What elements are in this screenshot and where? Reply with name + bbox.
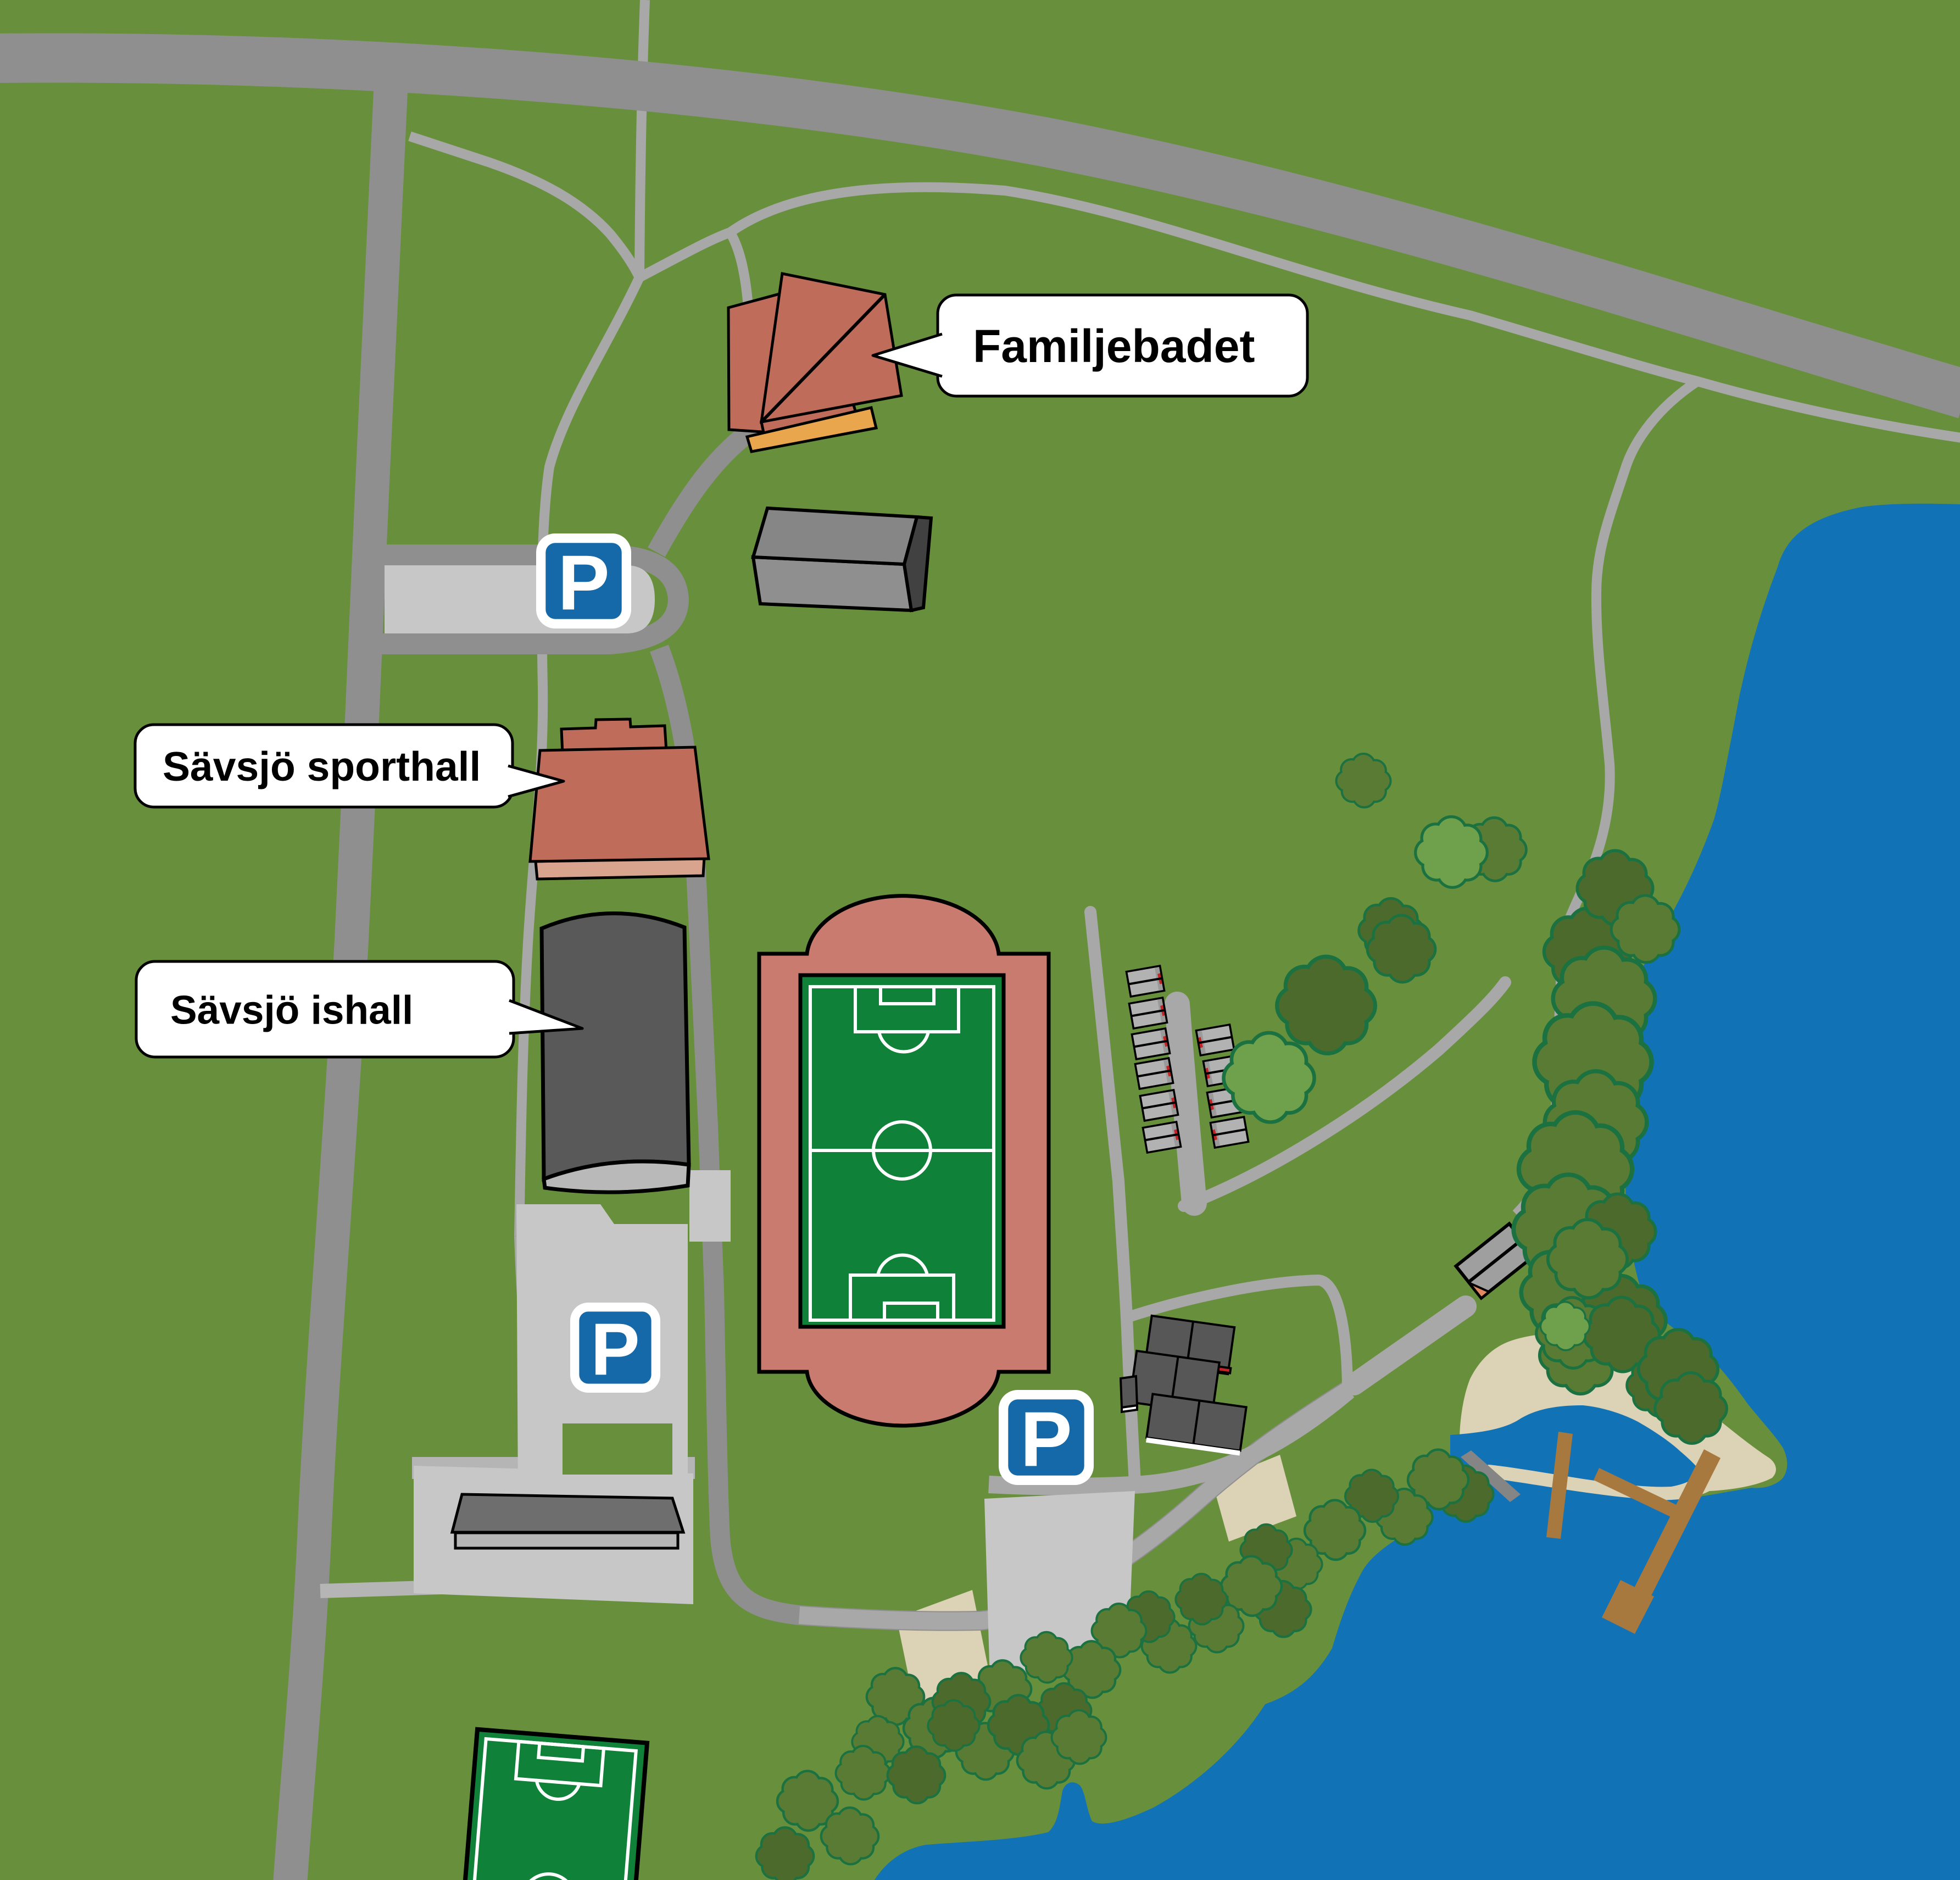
svg-text:P: P: [1020, 1396, 1072, 1483]
svg-text:Familjebadet: Familjebadet: [973, 320, 1255, 372]
svg-text:P: P: [591, 1308, 640, 1390]
svg-text:Sävsjö sporthall: Sävsjö sporthall: [163, 743, 481, 789]
svg-text:P: P: [558, 539, 610, 626]
svg-text:Sävsjö ishall: Sävsjö ishall: [170, 988, 413, 1032]
